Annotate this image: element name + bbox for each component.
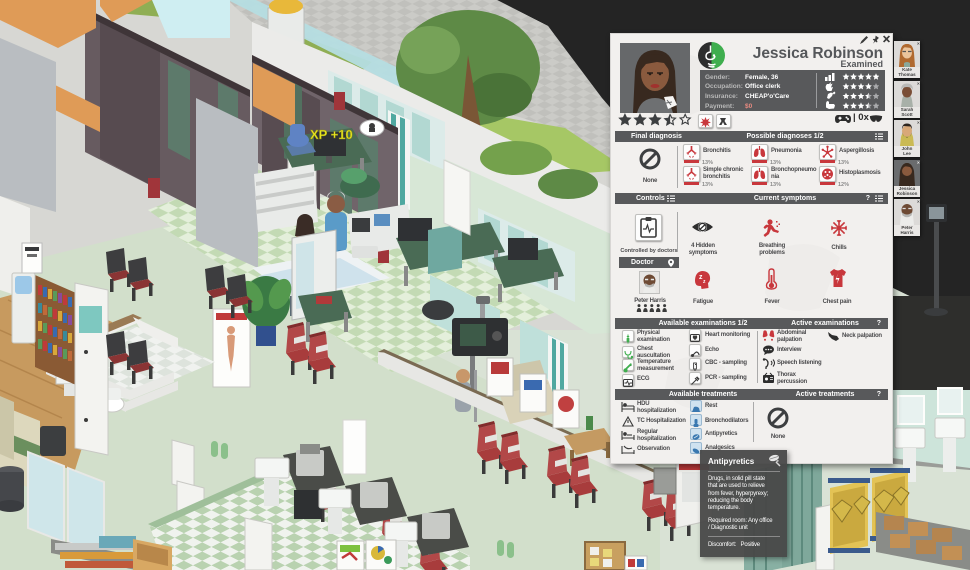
svg-text:XP +10: XP +10 — [310, 127, 353, 142]
